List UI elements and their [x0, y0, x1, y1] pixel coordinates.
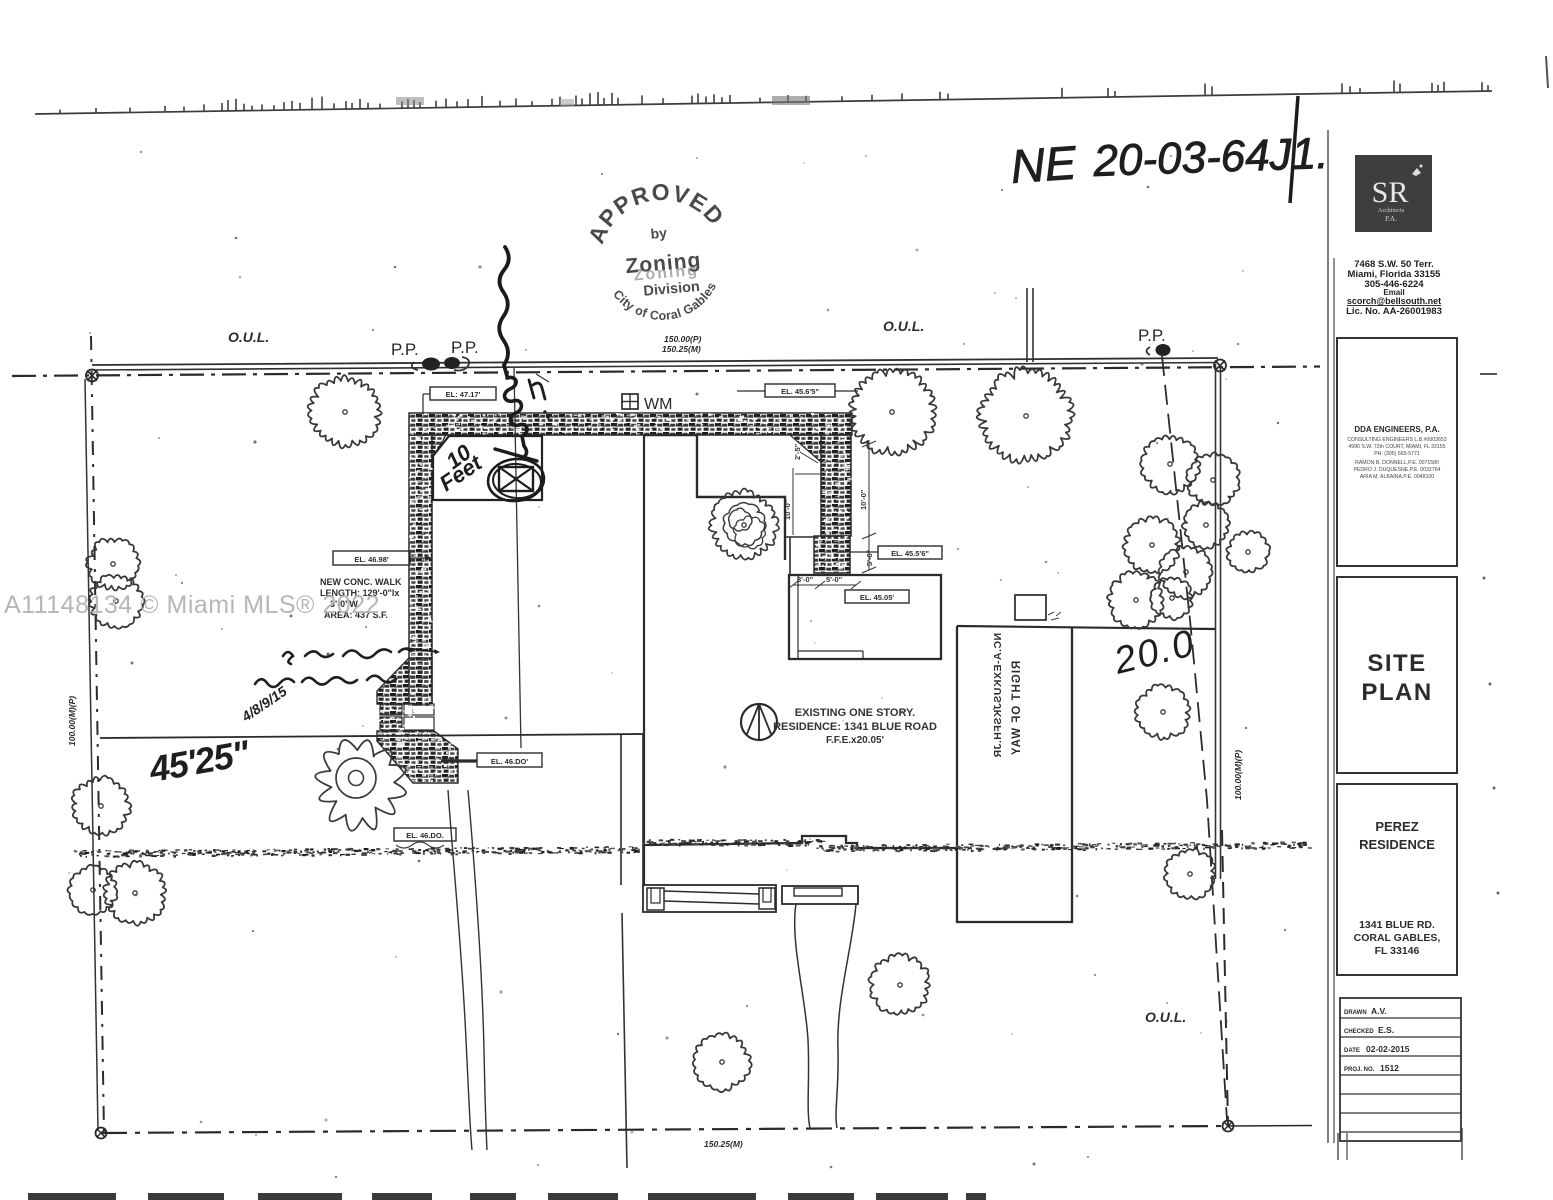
svg-text:PROJ. NO.: PROJ. NO.: [1344, 1067, 1375, 1073]
svg-text:O.U.L.: O.U.L.: [228, 329, 269, 345]
svg-text:P.P.: P.P.: [1138, 326, 1166, 345]
svg-text:5'-6": 5'-6": [865, 549, 874, 566]
svg-text:150.25(M): 150.25(M): [704, 1139, 743, 1149]
svg-text:by: by: [650, 224, 668, 241]
svg-text:NC.A-EXKUSJKSFH.JR: NC.A-EXKUSJKSFH.JR: [992, 633, 1004, 758]
svg-text:4990 S.W. 72th COURT, MIAMI, F: 4990 S.W. 72th COURT, MIAMI, FL 33155: [1348, 444, 1445, 450]
svg-text:NEW CONC. WALK: NEW CONC. WALK: [320, 577, 402, 587]
svg-text:SITE: SITE: [1367, 650, 1426, 677]
svg-text:150.25(M): 150.25(M): [662, 344, 701, 354]
svg-text:O.U.L.: O.U.L.: [1145, 1009, 1186, 1025]
svg-text:EL. 45.05': EL. 45.05': [860, 593, 895, 602]
svg-text:Lic. No. AA-26001983: Lic. No. AA-26001983: [1346, 306, 1442, 317]
svg-text:PH. (305) 665-5771: PH. (305) 665-5771: [1374, 451, 1420, 457]
svg-text:CHECKED: CHECKED: [1344, 1029, 1374, 1035]
svg-text:EL: 47.17': EL: 47.17': [446, 390, 481, 399]
svg-text:2'-5": 2'-5": [793, 443, 802, 460]
svg-text:CONSULTING ENGINEERS L.B.#0003: CONSULTING ENGINEERS L.B.#0003653: [1347, 437, 1446, 443]
svg-text:P.A.: P.A.: [1385, 215, 1397, 223]
svg-text:EL. 46.98': EL. 46.98': [354, 555, 389, 564]
svg-text:Architects: Architects: [1378, 207, 1405, 214]
svg-text:100.00(M)(P): 100.00(M)(P): [1233, 750, 1243, 800]
svg-text:1341 BLUE RD.: 1341 BLUE RD.: [1359, 919, 1435, 931]
svg-text:PEREZ: PEREZ: [1375, 819, 1418, 834]
svg-text:EL. 46.DO': EL. 46.DO': [491, 757, 528, 766]
svg-text:DDA ENGINEERS, P.A.: DDA ENGINEERS, P.A.: [1354, 425, 1439, 434]
svg-text:RESIDENCE: RESIDENCE: [1359, 837, 1435, 852]
svg-text:O.U.L.: O.U.L.: [883, 318, 924, 334]
svg-text:150.00(P): 150.00(P): [664, 334, 701, 344]
svg-text:F.F.E.x20.05': F.F.E.x20.05': [826, 735, 884, 746]
svg-text:FL 33146: FL 33146: [1375, 945, 1420, 957]
svg-text:EL. 45.5'6": EL. 45.5'6": [891, 549, 929, 558]
svg-text:5'-0": 5'-0": [826, 575, 843, 584]
svg-text:02-02-2015: 02-02-2015: [1366, 1044, 1410, 1054]
svg-text:DATE: DATE: [1344, 1048, 1360, 1054]
svg-text:EL. 45.6'5": EL. 45.6'5": [781, 387, 819, 396]
svg-text:WM: WM: [644, 396, 672, 413]
svg-text:RIGHT OF WAY: RIGHT OF WAY: [1011, 661, 1023, 756]
svg-text:ARIA M. ALBAINA,P.E. 0048100: ARIA M. ALBAINA,P.E. 0048100: [1360, 474, 1434, 480]
svg-text:RESIDENCE: 1341 BLUE ROAD: RESIDENCE: 1341 BLUE ROAD: [773, 721, 937, 733]
svg-text:P.P.: P.P.: [391, 340, 419, 359]
svg-text:DRAWN: DRAWN: [1344, 1010, 1367, 1016]
svg-text:PEDRO J. DUQUESNE,P.E. 0032764: PEDRO J. DUQUESNE,P.E. 0032764: [1354, 467, 1441, 473]
svg-text:PLAN: PLAN: [1361, 679, 1432, 706]
svg-text:10'-0": 10'-0": [859, 489, 868, 510]
svg-text:SR: SR: [1372, 176, 1409, 209]
svg-text:1512: 1512: [1380, 1063, 1399, 1073]
svg-text:A.V.: A.V.: [1371, 1006, 1387, 1016]
svg-text:NE: NE: [1009, 136, 1078, 193]
svg-text:A11148134 © Miami MLS® 2022: A11148134 © Miami MLS® 2022: [4, 591, 380, 619]
svg-text:RAMON B. DONNELL,P.E. 0071580: RAMON B. DONNELL,P.E. 0071580: [1355, 460, 1439, 466]
svg-text:E.S.: E.S.: [1378, 1025, 1394, 1035]
svg-text:EL. 46.DO.: EL. 46.DO.: [406, 831, 444, 840]
svg-text:3'-0": 3'-0": [797, 575, 814, 584]
svg-text:CORAL GABLES,: CORAL GABLES,: [1354, 932, 1441, 944]
svg-text:P.P.: P.P.: [451, 338, 479, 357]
svg-text:L: L: [412, 709, 415, 715]
svg-text:scorch@bellsouth.net: scorch@bellsouth.net: [1347, 296, 1441, 306]
svg-text:100.00(M)(P): 100.00(M)(P): [67, 696, 77, 746]
svg-text:EXISTING ONE STORY.: EXISTING ONE STORY.: [795, 707, 915, 719]
